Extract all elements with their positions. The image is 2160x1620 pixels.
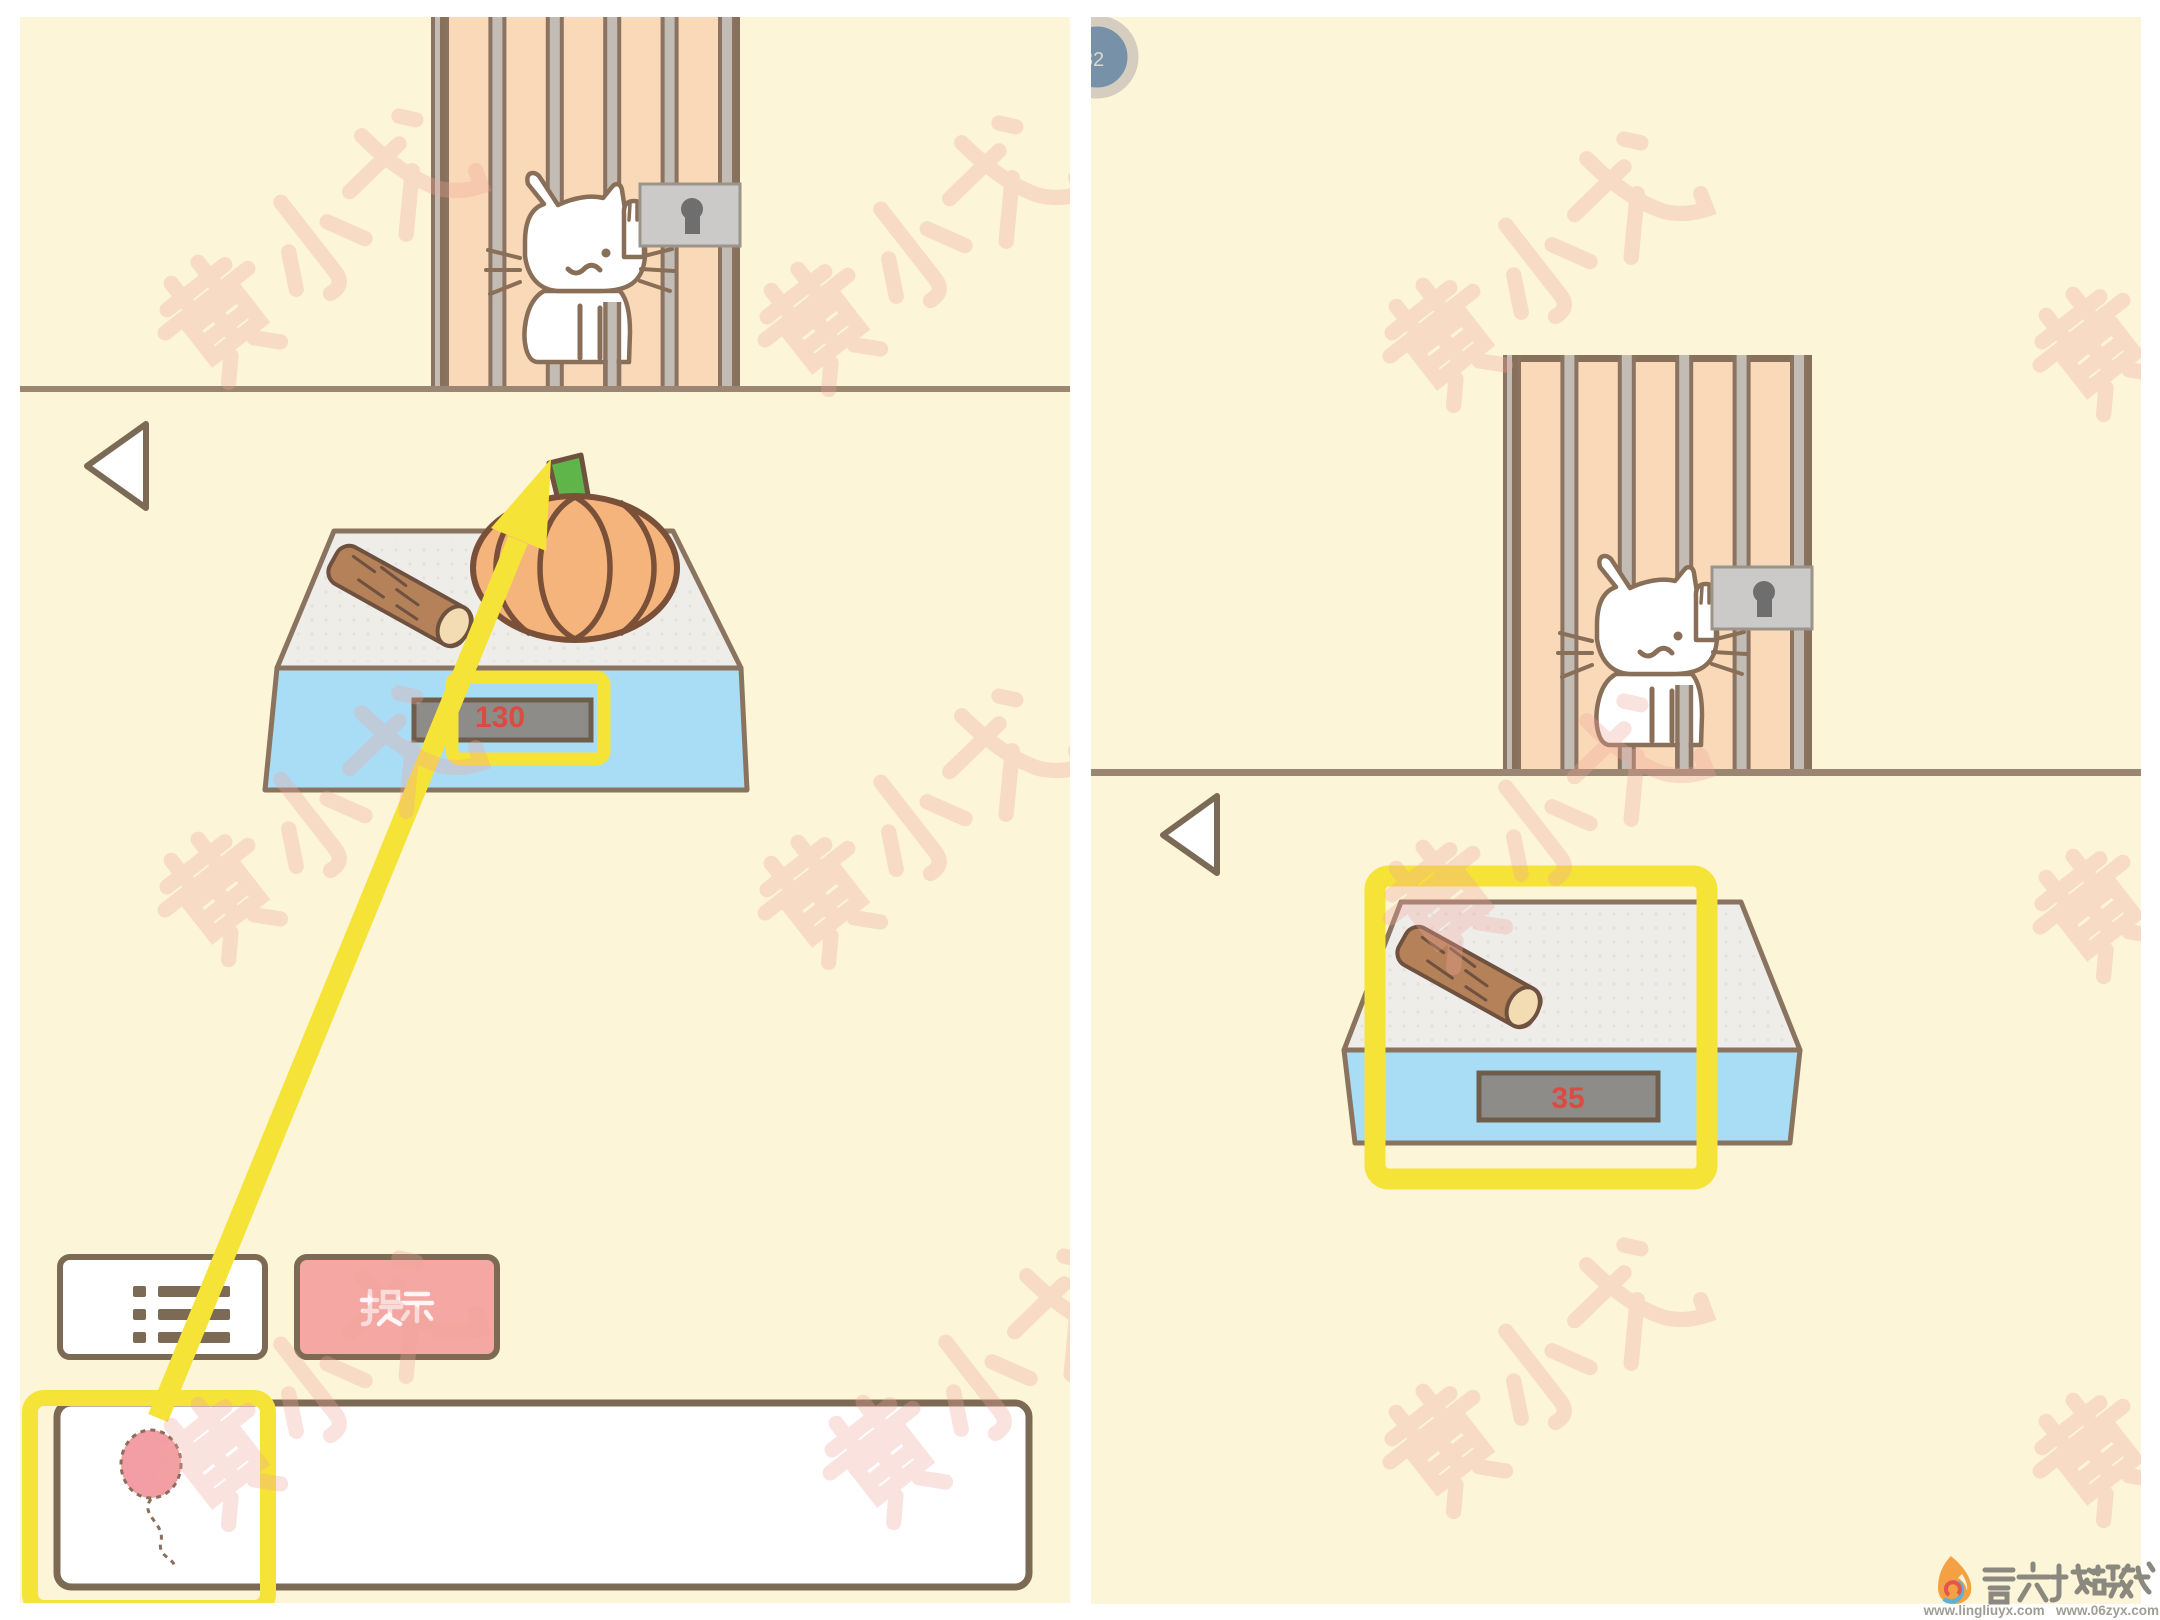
svg-text:130: 130	[475, 701, 525, 734]
svg-text:35: 35	[1551, 1082, 1584, 1115]
svg-text:www.lingliuyx.com www.06zyx.: www.lingliuyx.com www.06zyx.com	[1923, 1603, 2159, 1618]
